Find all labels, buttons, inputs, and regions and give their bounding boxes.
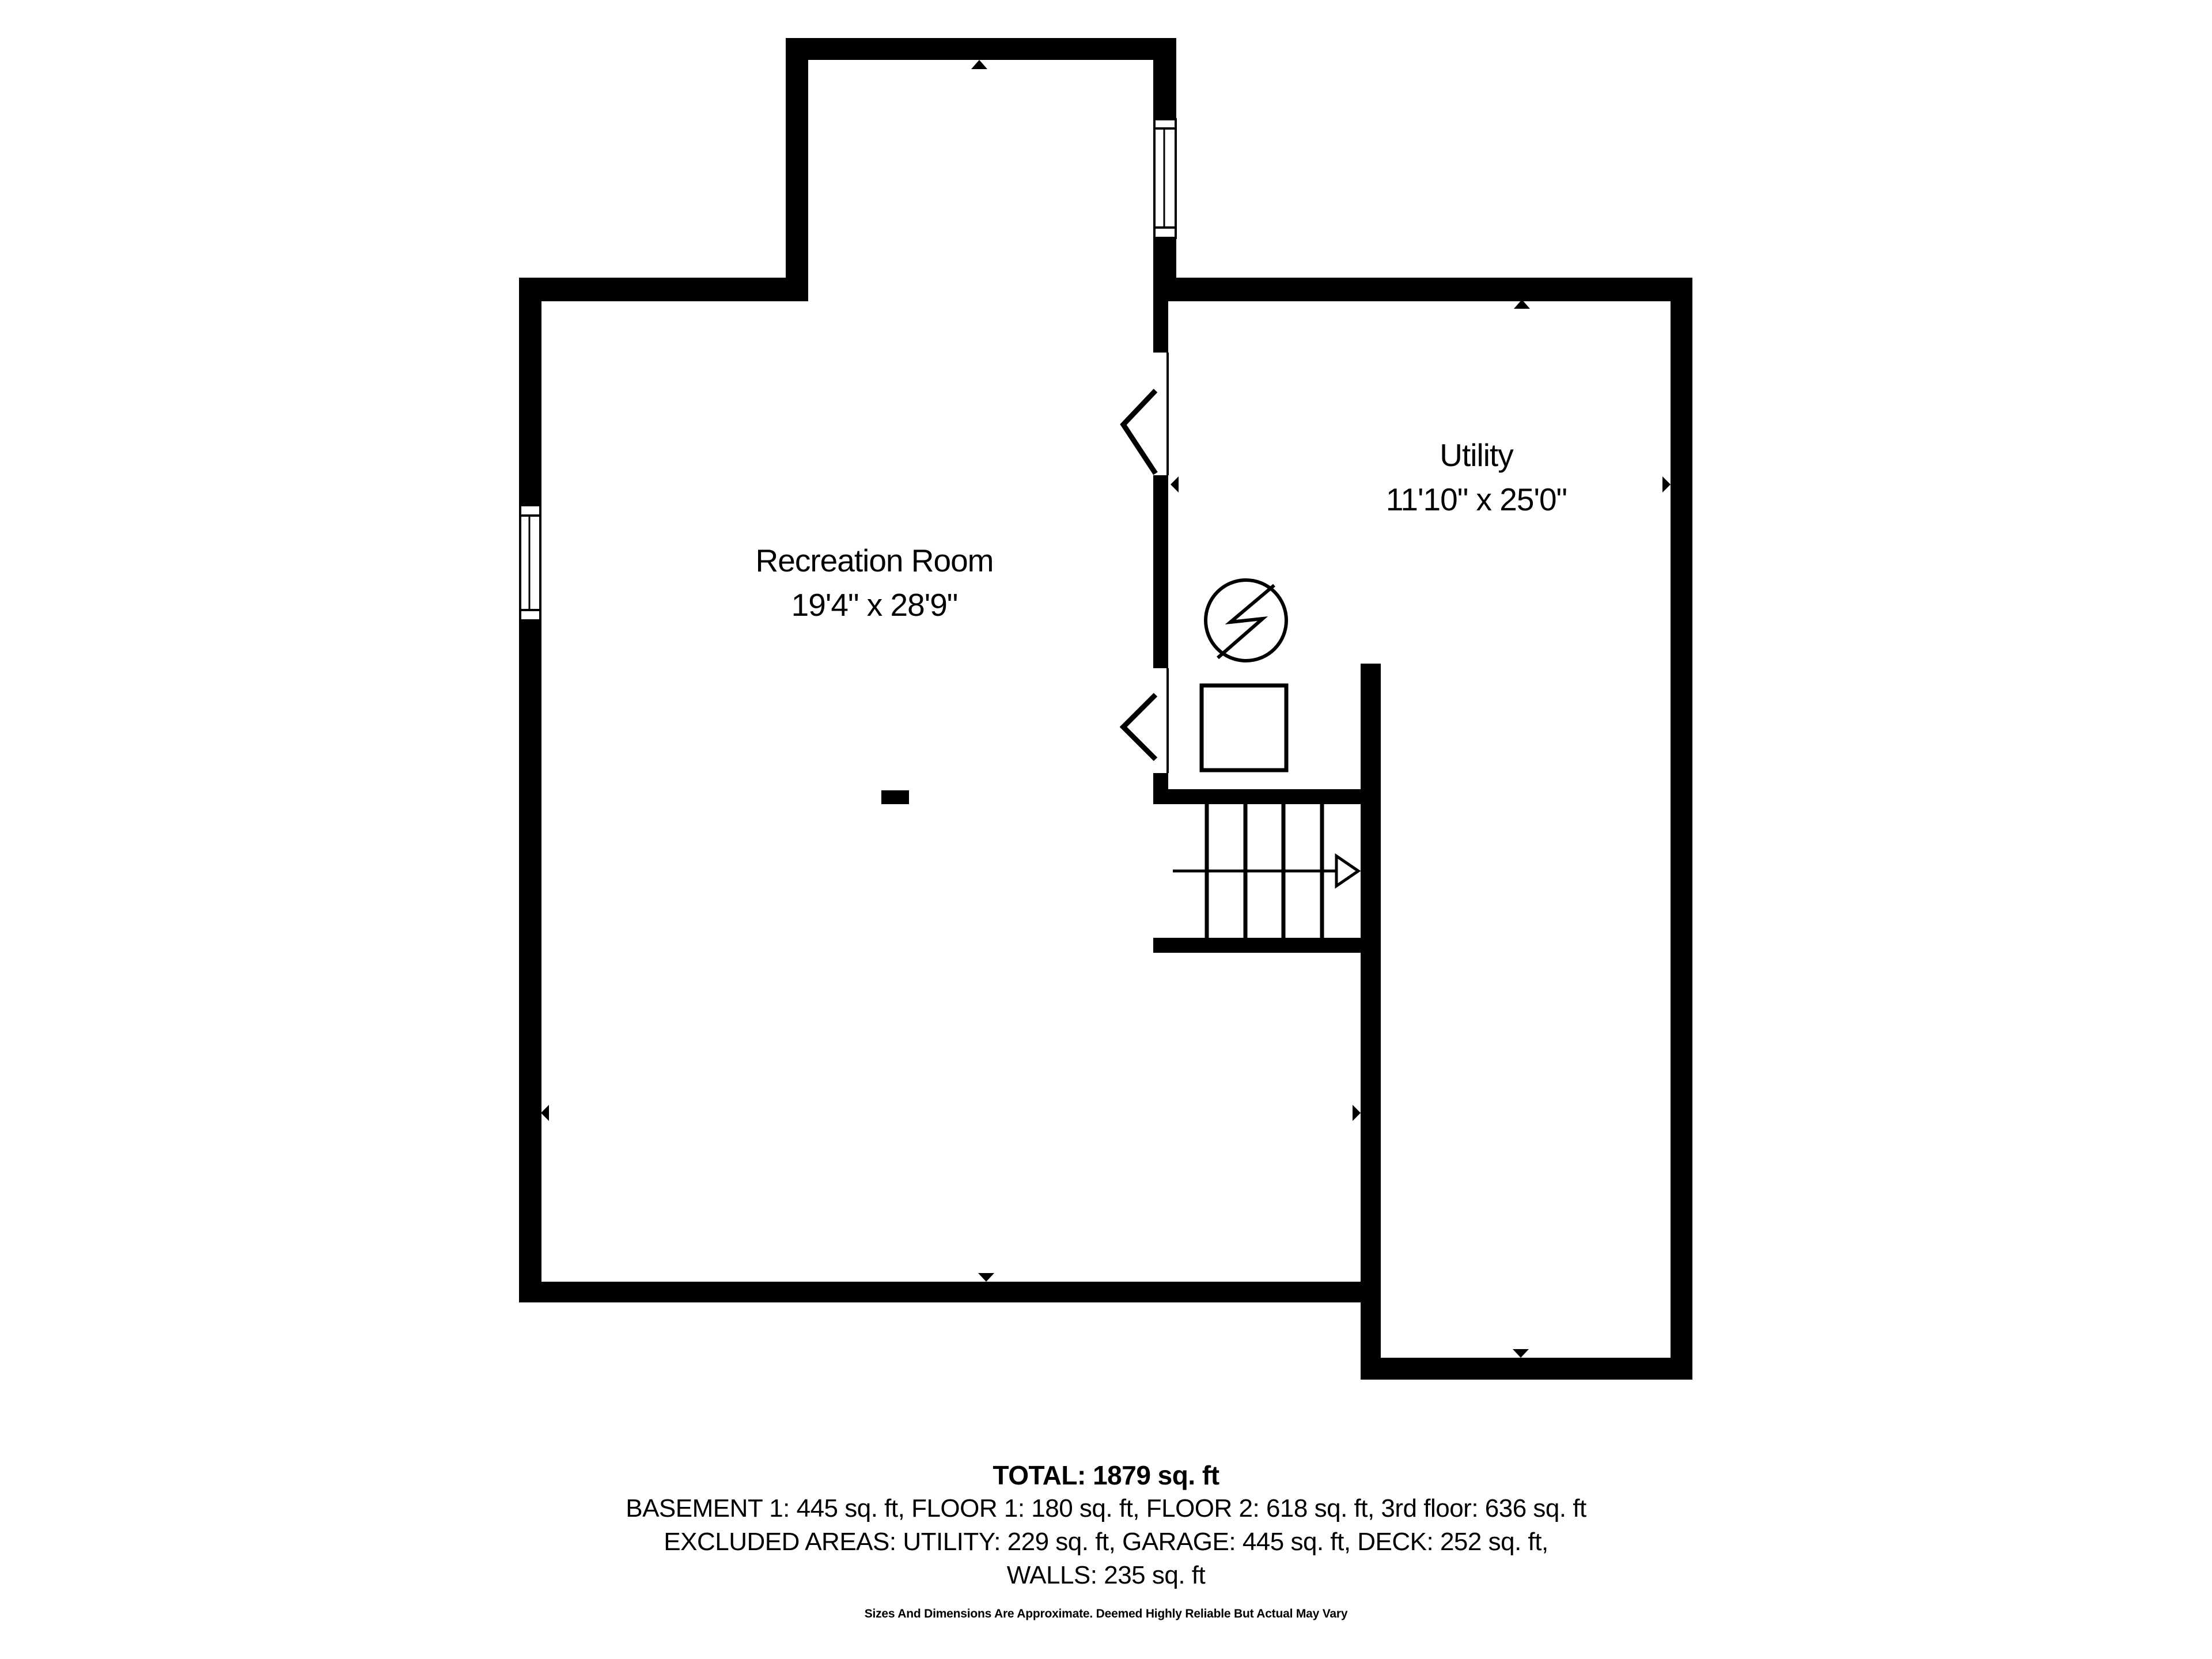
- recreation-room-label: Recreation Room 19'4" x 28'9": [756, 539, 994, 627]
- door-upper: [1123, 353, 1169, 475]
- room-dimensions: 19'4" x 28'9": [756, 583, 994, 627]
- wall-bumpout-left: [786, 38, 808, 301]
- door-swing-icon: [1123, 695, 1156, 759]
- dimension-marker-icon: [978, 1273, 994, 1282]
- wall-stair-bottom: [1153, 938, 1380, 953]
- room-name: Recreation Room: [756, 539, 994, 583]
- window-bumpout: [1154, 119, 1176, 238]
- utility-equipment: [1202, 580, 1286, 770]
- dimension-marker-icon: [1353, 1105, 1361, 1121]
- door-swing-icon: [1123, 391, 1156, 474]
- dimension-marker-icon: [541, 1105, 549, 1121]
- floor-areas-text: BASEMENT 1: 445 sq. ft, FLOOR 1: 180 sq.…: [626, 1492, 1586, 1525]
- door-plane-line: [1166, 668, 1169, 773]
- wall-interior-segment-1: [1153, 300, 1168, 353]
- window-left: [520, 505, 540, 620]
- door-lower: [1123, 668, 1169, 773]
- wall-bumpout-top: [786, 38, 1176, 60]
- floor-plan-page: Recreation Room 19'4" x 28'9" Utility 11…: [0, 0, 2212, 1659]
- room-name: Utility: [1386, 433, 1567, 478]
- excluded-areas-text: EXCLUDED AREAS: UTILITY: 229 sq. ft, GAR…: [626, 1525, 1586, 1559]
- wall-recreation-left: [519, 278, 541, 1302]
- stair-direction-arrow-icon: [1336, 856, 1358, 886]
- staircase: [1173, 804, 1358, 938]
- wall-utility-top: [1153, 278, 1692, 301]
- disclaimer-text: Sizes And Dimensions Are Approximate. De…: [626, 1607, 1586, 1621]
- support-post: [881, 790, 909, 804]
- wall-interior-segment-2: [1153, 475, 1168, 668]
- wall-utility-bottom: [1361, 1358, 1692, 1380]
- total-area-text: TOTAL: 1879 sq. ft: [626, 1459, 1586, 1492]
- utility-room-label: Utility 11'10" x 25'0": [1386, 433, 1567, 522]
- dimension-marker-icon: [1171, 476, 1179, 493]
- wall-stair-utility-divider: [1361, 664, 1381, 1380]
- dimension-markers: [541, 60, 1671, 1358]
- wall-recreation-top: [519, 278, 786, 301]
- equipment-square-icon: [1202, 685, 1286, 770]
- floor-plan-drawing: [0, 0, 2212, 1659]
- exterior-walls: [519, 38, 1692, 1380]
- wall-recreation-bottom: [519, 1282, 1381, 1302]
- wall-utility-right: [1671, 278, 1692, 1380]
- dimension-marker-icon: [1513, 1349, 1529, 1358]
- dimension-marker-icon: [1662, 476, 1671, 493]
- door-plane-line: [1166, 353, 1169, 475]
- room-dimensions: 11'10" x 25'0": [1386, 478, 1567, 522]
- area-summary: TOTAL: 1879 sq. ft BASEMENT 1: 445 sq. f…: [626, 1459, 1586, 1621]
- wall-stair-top: [1153, 789, 1361, 804]
- walls-area-text: WALLS: 235 sq. ft: [626, 1559, 1586, 1592]
- dimension-marker-icon: [971, 60, 987, 69]
